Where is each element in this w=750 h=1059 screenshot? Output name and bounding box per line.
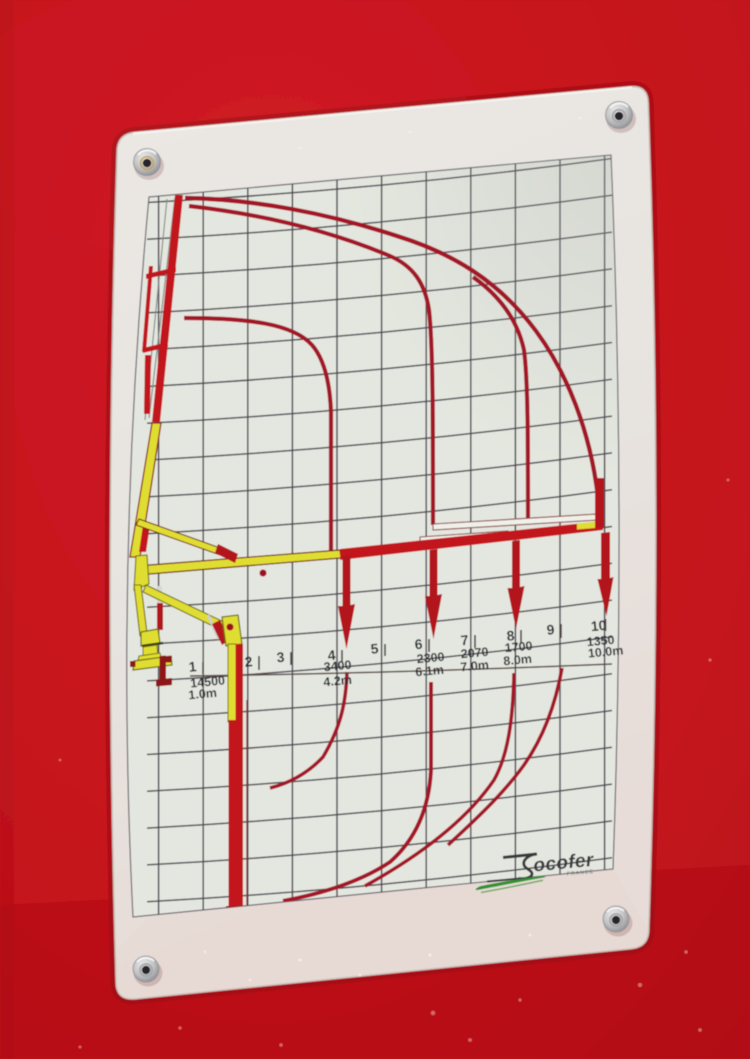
svg-text:10: 10: [590, 617, 607, 634]
svg-text:7.0m: 7.0m: [460, 658, 490, 675]
svg-text:1.0m: 1.0m: [188, 686, 218, 703]
svg-text:3400: 3400: [323, 658, 352, 675]
svg-text:6.1m: 6.1m: [415, 663, 445, 680]
svg-text:8.0m: 8.0m: [503, 652, 533, 669]
svg-text:4.2m: 4.2m: [323, 673, 353, 690]
